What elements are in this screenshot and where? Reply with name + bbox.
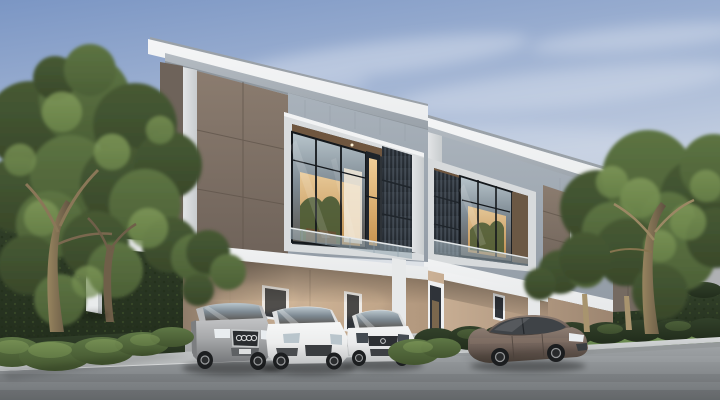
headlight xyxy=(356,333,368,343)
headlight xyxy=(283,333,300,343)
headlight xyxy=(330,334,342,345)
louver-panel-left xyxy=(382,146,412,252)
townhouse-rendering xyxy=(0,0,720,400)
license-plate xyxy=(239,349,251,354)
grille xyxy=(305,345,332,356)
headlight xyxy=(214,329,230,338)
rendering-canvas xyxy=(0,0,720,400)
downlight-left xyxy=(351,144,354,147)
